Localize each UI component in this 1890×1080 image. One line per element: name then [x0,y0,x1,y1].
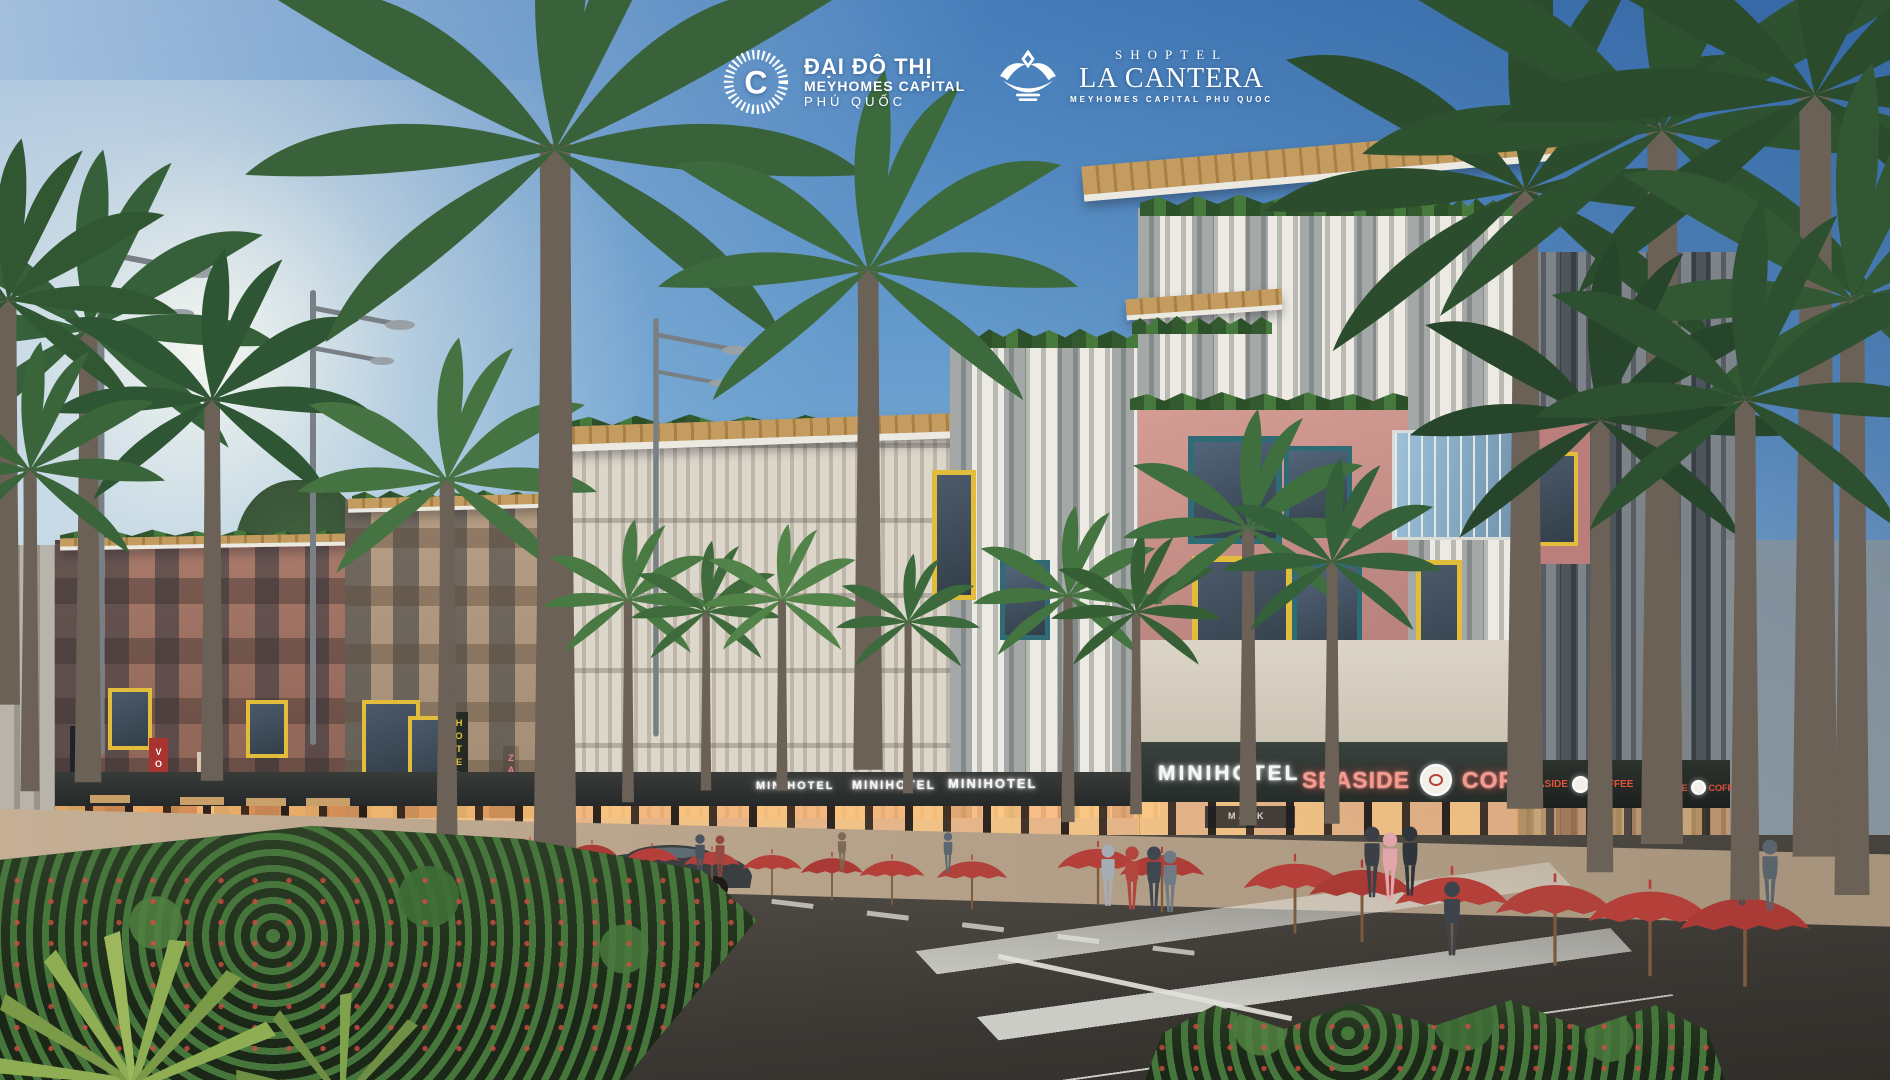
palm-tree [658,71,1078,770]
palm-tree [702,524,862,790]
logo-line-3: PHÚ QUỐC [804,94,965,109]
svg-text:C: C [744,64,767,100]
crown-icon [996,46,1060,104]
la-cantera-street-rendering: HOTEL VOGUE ZARA HOTEL ZARA M [0,0,1890,1080]
logo-line-1: ĐẠI ĐÔ THỊ [804,55,965,78]
shoptel-la-cantera-logo: SHOPTEL LA CANTERA MEYHOMES CAPITAL PHU … [996,46,1273,104]
la-cantera-text: SHOPTEL LA CANTERA MEYHOMES CAPITAL PHU … [1070,47,1273,104]
c-sunburst-icon: C [722,48,790,116]
dai-do-thi-text: ĐẠI ĐÔ THỊ MEYHOMES CAPITAL PHÚ QUỐC [804,55,965,109]
logo-line-2: MEYHOMES CAPITAL [804,78,965,94]
logo-brand: SHOPTEL [1070,47,1273,63]
logo-tagline: MEYHOMES CAPITAL PHU QUOC [1070,95,1273,104]
palm-tree [245,0,865,888]
fan-palm-cluster [0,850,440,1080]
logo-name: LA CANTERA [1070,63,1273,95]
dai-do-thi-logo: C ĐẠI ĐÔ THỊ MEYHOMES CAPITAL PHÚ QUỐC [722,48,965,116]
